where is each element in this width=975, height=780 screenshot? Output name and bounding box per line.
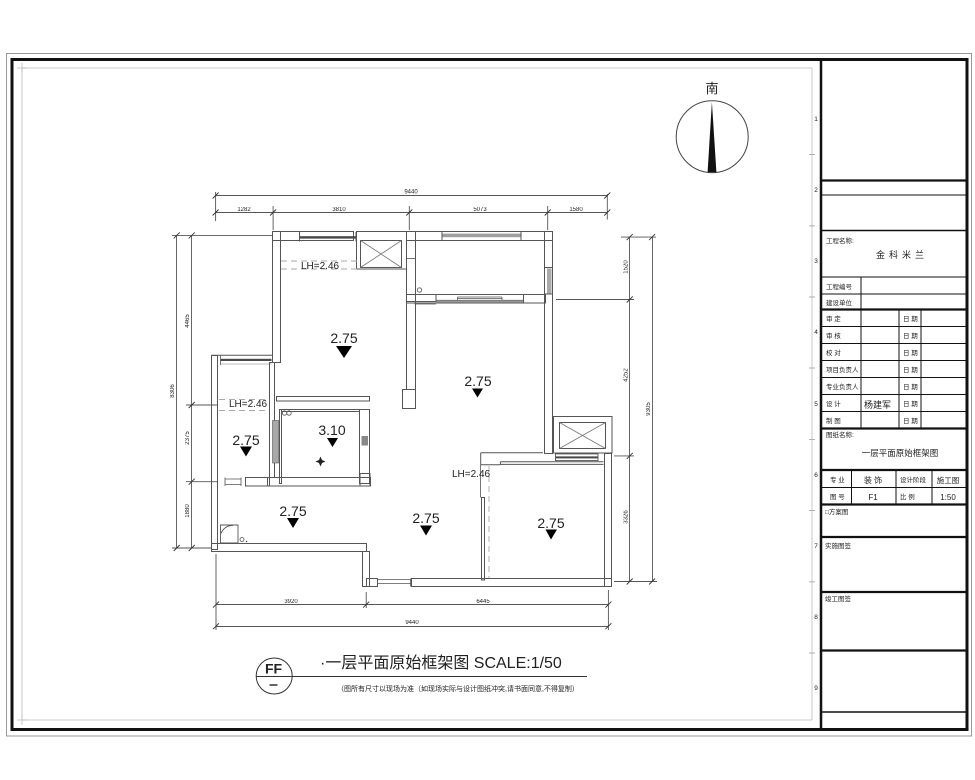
svg-text:1:50: 1:50 — [940, 493, 956, 502]
svg-text:日 期: 日 期 — [903, 315, 918, 323]
svg-text:□方案图: □方案图 — [825, 507, 848, 516]
svg-text:5073: 5073 — [473, 207, 487, 213]
svg-text:南: 南 — [705, 81, 718, 96]
svg-text:8306: 8306 — [170, 384, 176, 398]
svg-text:专 业: 专 业 — [830, 475, 845, 484]
svg-text:图纸名称:: 图纸名称: — [826, 430, 854, 439]
svg-text:金科米兰: 金科米兰 — [876, 249, 928, 260]
svg-text:图 号: 图 号 — [830, 493, 845, 501]
svg-text:1580: 1580 — [569, 207, 583, 213]
svg-text:3326: 3326 — [624, 510, 630, 524]
svg-text:实施图签: 实施图签 — [825, 541, 852, 550]
svg-text:2.75: 2.75 — [232, 432, 259, 448]
svg-text:2.75: 2.75 — [537, 515, 564, 531]
svg-text:校 对: 校 对 — [826, 348, 841, 357]
svg-text:1: 1 — [814, 116, 818, 123]
svg-text:LH=2.46: LH=2.46 — [301, 261, 340, 272]
svg-text:6: 6 — [814, 472, 818, 479]
svg-text:审 定: 审 定 — [826, 314, 841, 323]
svg-text:9305: 9305 — [646, 402, 652, 416]
svg-text:工程编号: 工程编号 — [826, 282, 853, 291]
svg-text:（图所有尺寸以现场为准（如现场实际与设计图纸冲突,请书面同意: （图所有尺寸以现场为准（如现场实际与设计图纸冲突,请书面同意,不得复制） — [337, 684, 579, 693]
svg-text:审 核: 审 核 — [826, 331, 841, 340]
svg-text:设 计: 设 计 — [826, 399, 841, 408]
svg-text:6445: 6445 — [476, 599, 490, 605]
svg-text:工程名称:: 工程名称: — [826, 236, 854, 245]
svg-text:一层平面原始框架图: 一层平面原始框架图 — [862, 448, 939, 458]
svg-text:装 饰: 装 饰 — [864, 475, 882, 485]
svg-text:2375: 2375 — [185, 431, 191, 445]
svg-text:2.75: 2.75 — [279, 503, 306, 519]
svg-text:3: 3 — [814, 258, 818, 265]
svg-text:建设单位: 建设单位 — [826, 298, 853, 307]
svg-text:2.75: 2.75 — [464, 373, 491, 389]
svg-text:杨建军: 杨建军 — [864, 399, 891, 410]
svg-text:专业负责人: 专业负责人 — [826, 382, 859, 391]
svg-text:3810: 3810 — [332, 207, 346, 213]
svg-text:·一层平面原始框架图 SCALE:1/50: ·一层平面原始框架图 SCALE:1/50 — [320, 654, 562, 672]
svg-text:设计阶段: 设计阶段 — [900, 475, 927, 484]
svg-text:日 期: 日 期 — [903, 332, 918, 340]
svg-text:1520: 1520 — [624, 260, 630, 274]
svg-text:施工图: 施工图 — [937, 475, 960, 485]
svg-text:日 期: 日 期 — [903, 383, 918, 391]
svg-text:比 例: 比 例 — [900, 492, 915, 501]
svg-text:2.75: 2.75 — [330, 330, 357, 346]
svg-text:5: 5 — [814, 401, 818, 408]
svg-text:竣工图签: 竣工图签 — [825, 594, 852, 603]
svg-text:LH=2.46: LH=2.46 — [229, 399, 268, 410]
svg-text:1282: 1282 — [237, 207, 251, 213]
svg-text:项目负责人: 项目负责人 — [826, 365, 859, 374]
svg-text:4: 4 — [814, 329, 818, 336]
svg-text:F1: F1 — [868, 493, 878, 502]
svg-text:8: 8 — [814, 614, 818, 621]
svg-text:9440: 9440 — [405, 620, 419, 626]
svg-text:2.75: 2.75 — [412, 510, 439, 526]
svg-text:制 图: 制 图 — [826, 416, 841, 425]
svg-text:9440: 9440 — [404, 190, 418, 196]
svg-text:7: 7 — [814, 543, 818, 550]
svg-text:9: 9 — [814, 685, 818, 692]
svg-text:3920: 3920 — [284, 599, 298, 605]
svg-text:日 期: 日 期 — [903, 349, 918, 357]
svg-text:3.10: 3.10 — [318, 422, 345, 438]
svg-text:日 期: 日 期 — [903, 366, 918, 374]
svg-text:日 期: 日 期 — [903, 400, 918, 408]
svg-text:4252: 4252 — [624, 368, 630, 382]
svg-text:日 期: 日 期 — [903, 417, 918, 425]
svg-text:2: 2 — [814, 187, 818, 194]
svg-text:LH=2.46: LH=2.46 — [452, 469, 491, 480]
svg-text:4465: 4465 — [185, 314, 191, 328]
svg-text:FF: FF — [265, 661, 283, 677]
svg-text:1880: 1880 — [185, 504, 191, 518]
